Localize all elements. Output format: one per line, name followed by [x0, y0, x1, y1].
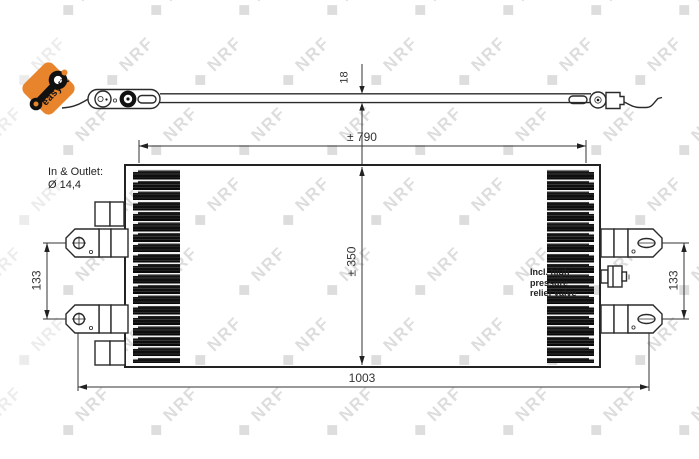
right-fin-teeth: [589, 169, 594, 363]
watermark-text: ◆ NRF: [144, 103, 203, 162]
dim-label-right-spacing: 133: [668, 255, 681, 307]
condenser-body: [124, 164, 601, 368]
watermark-text: ◆ NRF: [628, 173, 687, 232]
dim-label-core-height: ± 350: [346, 236, 359, 288]
watermark-text: ◆ NRF: [540, 33, 599, 92]
watermark-text: ◆ NRF: [188, 33, 247, 92]
right-fin-band: [547, 169, 594, 363]
watermark-text: ◆ NRF: [12, 313, 71, 372]
watermark-text: ◆ NRF: [672, 103, 699, 162]
watermark-text: ◆ NRF: [276, 33, 335, 92]
watermark-text: ◆ NRF: [364, 33, 423, 92]
watermark-text: ◆ NRF: [584, 103, 643, 162]
watermark-text: ◆ NRF: [56, 103, 115, 162]
inlet-outlet-note: In & Outlet: Ø 14,4: [48, 166, 112, 192]
watermark-text: ◆ NRF: [144, 383, 203, 442]
watermark-text: ◆ NRF: [56, 383, 115, 442]
dim-label-left-spacing: 133: [31, 255, 44, 307]
watermark-text: ◆ NRF: [408, 383, 467, 442]
watermark-text: ◆ NRF: [0, 243, 27, 302]
watermark-text: ◆ NRF: [452, 33, 511, 92]
watermark-text: ◆ NRF: [232, 0, 291, 21]
watermark-text: ◆ NRF: [628, 33, 687, 92]
watermark-text: ◆ NRF: [56, 243, 115, 302]
watermark-text: ◆ NRF: [496, 383, 555, 442]
watermark-text: ◆ NRF: [496, 103, 555, 162]
watermark-text: ◆ NRF: [584, 383, 643, 442]
technical-drawing: ◆ NRF◆ NRF◆ NRF◆ NRF◆ NRF◆ NRF◆ NRF◆ NRF…: [0, 0, 699, 459]
watermark-text: ◆ NRF: [320, 0, 379, 21]
watermark-text: ◆ NRF: [628, 313, 687, 372]
watermark-text: ◆ NRF: [0, 0, 27, 21]
left-fin-teeth: [133, 169, 138, 363]
watermark-text: ◆ NRF: [408, 103, 467, 162]
watermark-text: ◆ NRF: [232, 103, 291, 162]
left-fin-band: [133, 169, 180, 363]
watermark-text: ◆ NRF: [584, 0, 643, 21]
watermark-text: ◆ NRF: [100, 33, 159, 92]
dim-label-core-width: ± 790: [331, 131, 393, 144]
watermark-text: ◆ NRF: [232, 383, 291, 442]
inlet-outlet-line1: In & Outlet:: [48, 166, 103, 178]
watermark-text: ◆ NRF: [0, 103, 27, 162]
watermark-text: ◆ NRF: [672, 383, 699, 442]
watermark-text: ◆ NRF: [144, 0, 203, 21]
watermark-text: ◆ NRF: [56, 0, 115, 21]
watermark-text: ◆ NRF: [0, 383, 27, 442]
inlet-outlet-line2: Ø 14,4: [48, 179, 81, 191]
watermark-text: ◆ NRF: [672, 0, 699, 21]
relief-valve-line2: relief valve: [530, 288, 577, 298]
dim-label-strip-height: 18: [339, 59, 352, 97]
watermark-text: ◆ NRF: [496, 0, 555, 21]
relief-valve-line1: Incl. high pressure: [530, 267, 570, 288]
watermark-text: ◆ NRF: [408, 0, 467, 21]
dim-label-overall-width: 1003: [332, 372, 392, 385]
watermark-text: ◆ NRF: [320, 383, 379, 442]
relief-valve-note: Incl. high pressure relief valve: [530, 267, 604, 299]
